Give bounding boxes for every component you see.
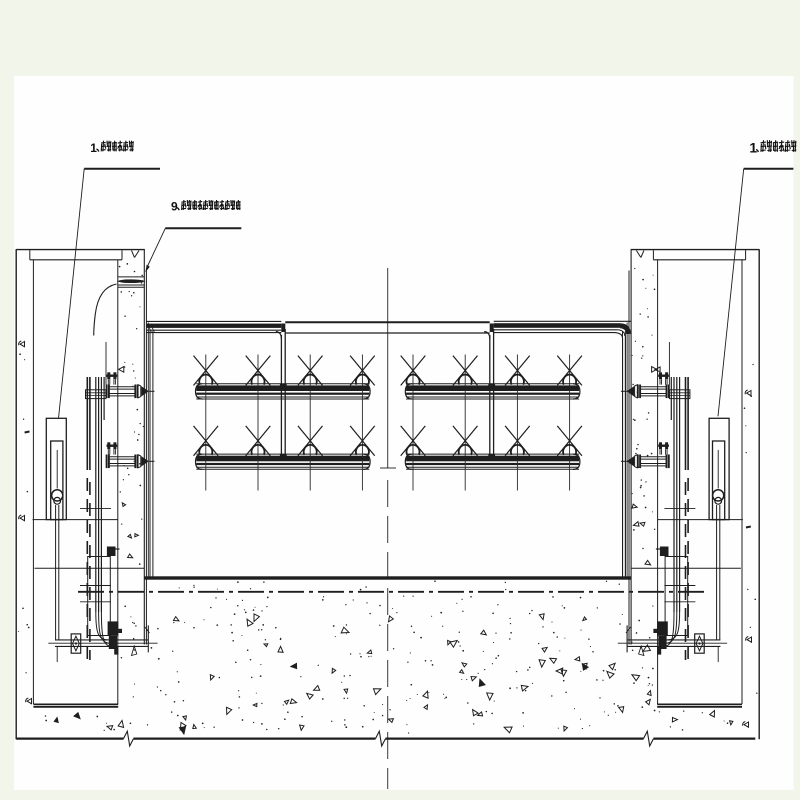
svg-text:1: 1 [90,141,97,155]
svg-text:1: 1 [749,140,757,156]
svg-text:9: 9 [171,200,178,214]
